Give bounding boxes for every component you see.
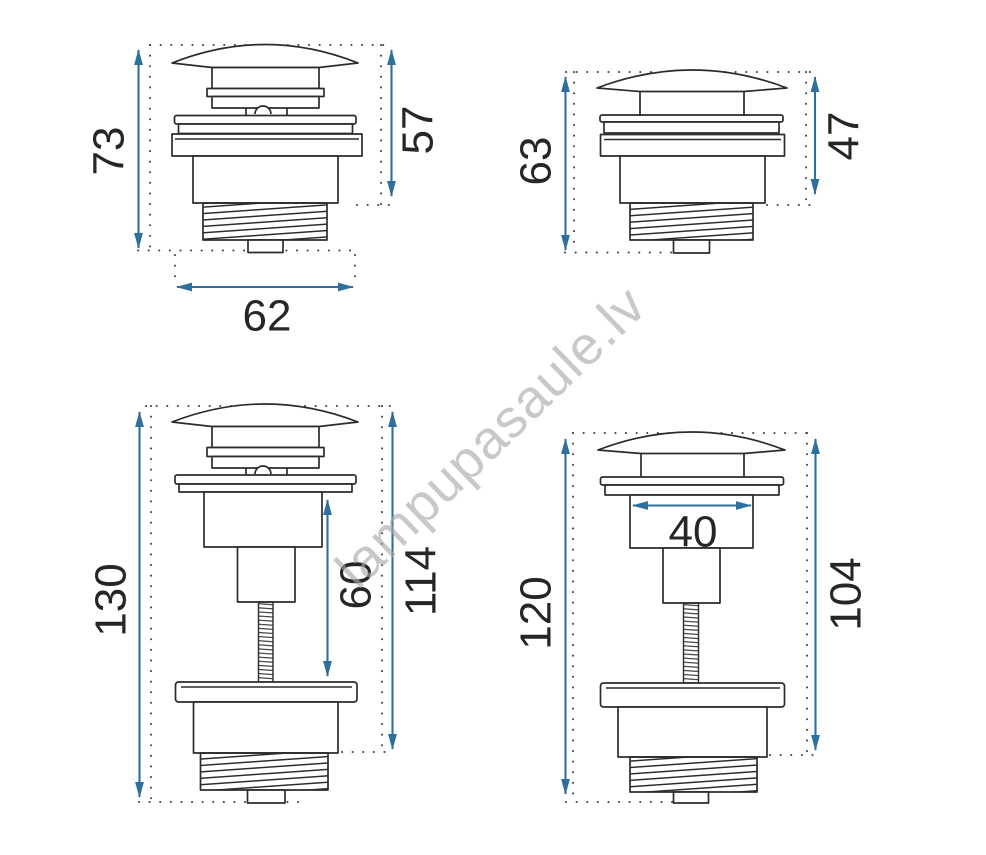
top-flange-plate (601, 477, 784, 485)
flange-band (179, 124, 353, 134)
tail-stub (248, 240, 283, 253)
cap-neck (641, 454, 744, 478)
drain-plug-top-right (597, 70, 787, 253)
drawing-top-right: 63 47 (512, 70, 869, 253)
dim-label-upper-height: 47 (820, 112, 869, 161)
thread-section (203, 203, 327, 240)
tail-stub (248, 790, 286, 803)
cap-neck (640, 92, 744, 116)
technical-dimension-diagram: 73 57 62 63 47 (0, 0, 986, 855)
top-flange-plate (600, 115, 783, 122)
flange-band (179, 484, 352, 492)
cap-dome (172, 45, 358, 68)
threaded-rod (259, 602, 274, 682)
dim-label-overall-height: 130 (87, 563, 136, 636)
bottom-flange-plate (601, 683, 785, 707)
drain-plug-bottom-left (172, 404, 358, 803)
cap-cylinder-upper (212, 68, 319, 89)
top-flange-plate (175, 116, 357, 125)
flange-band (605, 485, 779, 495)
drain-plug-top-left (172, 45, 362, 253)
locknut-band (601, 135, 785, 157)
lower-body (618, 707, 767, 757)
cap-cylinder-upper (212, 427, 319, 448)
watermark-text: lampupasaule.lv (324, 275, 657, 600)
drain-plug-bottom-right (598, 432, 785, 803)
cap-dome (172, 404, 358, 427)
dim-label-body-height: 104 (822, 557, 871, 630)
drawing-bottom-right: 120 40 104 (512, 432, 871, 803)
narrow-coupler (238, 547, 296, 602)
drawing-top-left: 73 57 62 (85, 45, 443, 341)
tail-stub (674, 240, 710, 253)
drawing-canvas: 73 57 62 63 47 (0, 0, 986, 855)
threaded-rod (684, 603, 699, 683)
cap-dome (597, 70, 787, 92)
tail-stub (674, 792, 709, 803)
dim-label-overall-height: 120 (512, 576, 561, 649)
cap-dome (598, 432, 785, 454)
dim-label-upper-height: 57 (394, 106, 443, 155)
dim-label-width: 62 (243, 292, 292, 341)
dim-label-cap-width: 40 (669, 508, 718, 557)
cap-flange-ring (207, 89, 324, 97)
dim-label-overall-height: 63 (512, 137, 561, 186)
cap-flange-ring (207, 448, 324, 457)
thread-section (630, 757, 757, 792)
flange-band (604, 122, 779, 133)
locknut-band (172, 134, 362, 156)
valve-body (620, 156, 765, 203)
thread-section (630, 203, 753, 240)
dim-label-overall-height: 73 (85, 127, 134, 176)
top-flange-plate (175, 475, 356, 484)
upper-body (204, 492, 322, 547)
thread-section (201, 753, 329, 790)
bottom-flange-plate (176, 682, 358, 702)
valve-body (193, 156, 338, 203)
drawing-bottom-left: 130 60 114 (87, 404, 446, 803)
lower-body (194, 702, 339, 753)
